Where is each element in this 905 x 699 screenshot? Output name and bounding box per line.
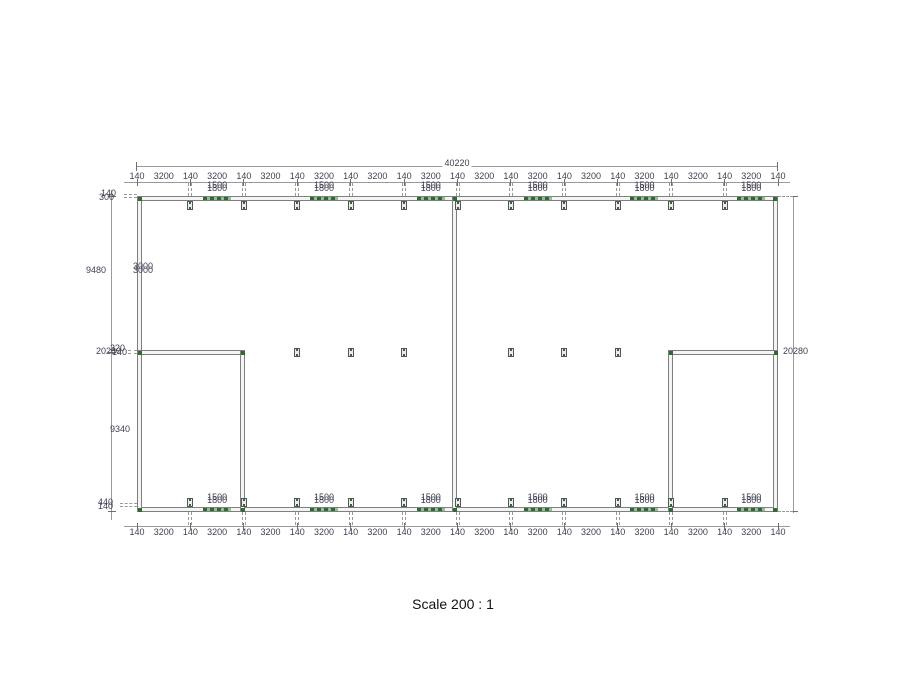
side-dim-label: 140 [98, 502, 113, 511]
window-dim-label: 1800 [528, 496, 548, 505]
witness-line [509, 512, 511, 525]
chain-dim-label: 3200 [314, 528, 334, 537]
window-dim-label: 1800 [634, 496, 654, 505]
witness-line [562, 183, 564, 196]
window-bar [524, 508, 552, 511]
room-right-wall-left [668, 350, 673, 512]
structural-post [348, 201, 354, 210]
witness-line [565, 183, 567, 196]
witness-line [242, 512, 244, 525]
window-bar [203, 197, 231, 200]
witness-line [405, 183, 407, 196]
structural-post [561, 498, 567, 507]
window-bar [737, 508, 765, 511]
chain-dim-label: 3200 [528, 528, 548, 537]
witness-line [295, 183, 297, 196]
witness-line [456, 512, 458, 525]
dim-tick [778, 523, 779, 530]
structural-post [455, 498, 461, 507]
window-dim-label: 1800 [528, 184, 548, 193]
window-bar [203, 508, 231, 511]
chain-dim-label: 3200 [688, 528, 708, 537]
witness-line [191, 183, 193, 196]
wall-junction-dot [669, 508, 673, 512]
dim-tick [137, 179, 138, 186]
witness-line [349, 183, 351, 196]
floor-plan-canvas: 40220 20280 Scale 200 : 1 14032001403200… [0, 0, 905, 699]
chain-dim-label: 3200 [634, 528, 654, 537]
chain-dim-label: 3200 [688, 172, 708, 181]
witness-line [726, 512, 728, 525]
window-dim-label: 1800 [421, 184, 441, 193]
wall-junction-dot [138, 197, 142, 201]
overall-height-label-right: 20280 [783, 347, 808, 356]
witness-line [352, 512, 354, 525]
chain-dim-label: 3200 [207, 528, 227, 537]
structural-post [561, 201, 567, 210]
side-dim-label: 9340 [110, 425, 130, 434]
wall-junction-dot [669, 351, 673, 355]
witness-line [778, 196, 793, 198]
window-bar [524, 197, 552, 200]
overall-width-label: 40220 [442, 159, 471, 168]
witness-line [128, 350, 137, 352]
side-dim-label: 140 [112, 348, 127, 357]
structural-post [241, 201, 247, 210]
window-dim-label: 1800 [207, 496, 227, 505]
structural-post [508, 348, 514, 357]
structural-post [615, 498, 621, 507]
window-dim-label: 1800 [314, 184, 334, 193]
witness-line [672, 512, 674, 525]
witness-line [512, 512, 514, 525]
window-dim-label: 1800 [207, 184, 227, 193]
window-bar [737, 197, 765, 200]
witness-line [619, 183, 621, 196]
wall-junction-dot [773, 508, 777, 512]
witness-line [352, 183, 354, 196]
witness-line [191, 512, 193, 525]
window-bar [417, 508, 445, 511]
witness-line [405, 512, 407, 525]
witness-line [669, 183, 671, 196]
witness-line [509, 183, 511, 196]
side-dim-label: 9480 [86, 266, 106, 275]
structural-post [187, 201, 193, 210]
chain-dim-label: 3200 [581, 528, 601, 537]
structural-post [401, 348, 407, 357]
structural-post [401, 498, 407, 507]
chain-dim-label: 3200 [261, 172, 281, 181]
witness-line [124, 197, 137, 199]
structural-post [294, 348, 300, 357]
wall-junction-dot [773, 197, 777, 201]
chain-dim-label: 3200 [581, 172, 601, 181]
witness-line [298, 512, 300, 525]
wall-bottom [137, 507, 778, 512]
chain-dim-label: 3200 [474, 528, 494, 537]
side-dim-label: 300 [99, 193, 114, 202]
dim-tick [777, 162, 778, 171]
window-dim-label: 1800 [421, 496, 441, 505]
witness-line [188, 512, 190, 525]
witness-line [295, 512, 297, 525]
scale-label: Scale 200 : 1 [412, 596, 494, 612]
witness-line [242, 183, 244, 196]
structural-post [401, 201, 407, 210]
witness-line [562, 512, 564, 525]
chain-dim-label: 3200 [261, 528, 281, 537]
window-bar [310, 508, 338, 511]
witness-line [120, 506, 137, 508]
dim-tick [108, 511, 116, 512]
witness-line [512, 183, 514, 196]
witness-line [616, 183, 618, 196]
structural-post [187, 498, 193, 507]
structural-post [455, 201, 461, 210]
side-dim-label: 3000 [133, 266, 153, 275]
witness-line [120, 503, 137, 505]
chain-dim-label: 3200 [154, 528, 174, 537]
chain-dim-label: 3200 [741, 528, 761, 537]
witness-line [245, 183, 247, 196]
witness-line [723, 183, 725, 196]
structural-post [508, 201, 514, 210]
structural-post [668, 498, 674, 507]
witness-line [245, 512, 247, 525]
structural-post [348, 498, 354, 507]
witness-line [349, 512, 351, 525]
witness-line [778, 511, 793, 513]
window-bar [630, 508, 658, 511]
window-bar [310, 197, 338, 200]
wall-junction-dot [774, 351, 778, 355]
witness-line [402, 183, 404, 196]
structural-post [294, 201, 300, 210]
wall-junction-dot [241, 351, 245, 355]
witness-line [726, 183, 728, 196]
structural-post [615, 201, 621, 210]
structural-post [348, 348, 354, 357]
witness-line [402, 512, 404, 525]
window-dim-label: 1800 [634, 184, 654, 193]
chain-dim-label: 3200 [474, 172, 494, 181]
structural-post [294, 498, 300, 507]
window-bar [417, 197, 445, 200]
window-dim-label: 1800 [741, 184, 761, 193]
room-left-wall-top [137, 350, 245, 355]
witness-line [723, 512, 725, 525]
witness-line [124, 194, 137, 196]
structural-post [241, 498, 247, 507]
witness-line [188, 183, 190, 196]
witness-line [565, 512, 567, 525]
structural-post [615, 348, 621, 357]
chain-dim-label: 3200 [421, 528, 441, 537]
witness-line [616, 512, 618, 525]
structural-post [722, 201, 728, 210]
structural-post [722, 498, 728, 507]
dim-tick [136, 162, 137, 171]
wall-center [452, 196, 457, 512]
chain-dim-label: 3200 [367, 172, 387, 181]
wall-junction-dot [241, 508, 245, 512]
witness-line [619, 512, 621, 525]
dim-tick [778, 179, 779, 186]
chain-dim-label: 3200 [154, 172, 174, 181]
structural-post [561, 348, 567, 357]
window-bar [630, 197, 658, 200]
witness-line [672, 183, 674, 196]
witness-line [128, 353, 137, 355]
room-right-wall-top [668, 350, 778, 355]
structural-post [668, 201, 674, 210]
window-dim-label: 1800 [741, 496, 761, 505]
wall-junction-dot [138, 351, 142, 355]
witness-line [459, 512, 461, 525]
wall-junction-dot [453, 508, 457, 512]
wall-junction-dot [453, 197, 457, 201]
chain-dim-label: 3200 [367, 528, 387, 537]
dim-tick [137, 523, 138, 530]
witness-line [298, 183, 300, 196]
wall-junction-dot [138, 508, 142, 512]
window-dim-label: 1800 [314, 496, 334, 505]
witness-line [459, 183, 461, 196]
witness-line [669, 512, 671, 525]
witness-line [456, 183, 458, 196]
room-left-wall-right [240, 350, 245, 512]
structural-post [508, 498, 514, 507]
